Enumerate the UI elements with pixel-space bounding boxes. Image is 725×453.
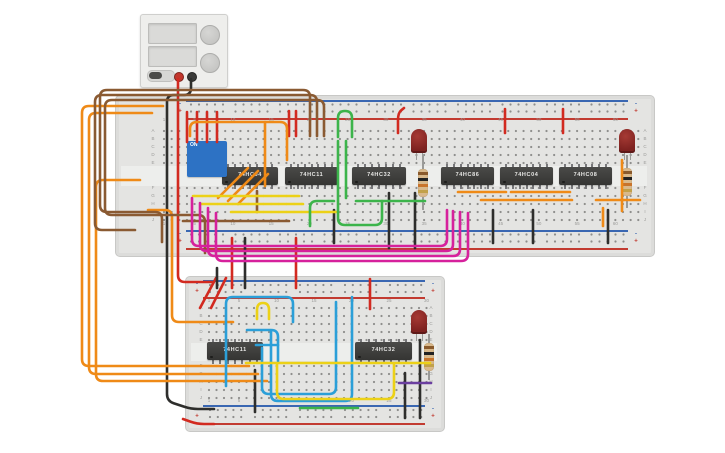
wire-cyan[interactable] [226,297,293,386]
wire-yellow[interactable] [257,303,269,319]
wire-cyan[interactable] [271,297,352,401]
wire-red[interactable] [398,108,404,133]
wire-orange[interactable] [82,106,249,366]
wire-green[interactable] [338,111,352,137]
wire-red[interactable] [183,419,214,424]
wire-green[interactable] [338,141,382,225]
wires-layer [0,0,725,453]
wire-orange[interactable] [238,174,268,204]
wire-orange[interactable] [190,122,287,160]
wire-orange[interactable] [218,168,248,198]
circuit-canvas: -+-+-+-+11551010151520202525303035354040… [0,0,725,453]
wire-green[interactable] [310,201,334,226]
wire-cyan[interactable] [262,302,336,394]
